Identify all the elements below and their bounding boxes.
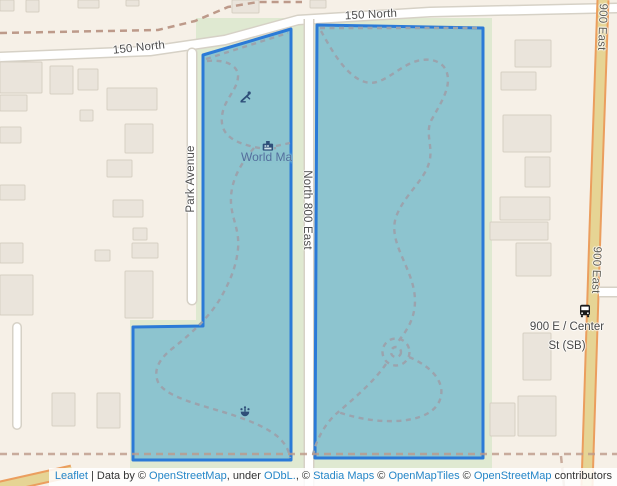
attribution-text: © xyxy=(460,470,474,482)
building xyxy=(0,275,33,315)
building xyxy=(0,0,14,11)
building xyxy=(80,110,93,121)
building xyxy=(50,66,73,94)
attribution-link-stadia-maps[interactable]: Stadia Maps xyxy=(313,470,374,482)
building xyxy=(107,88,157,110)
attribution-link-odbl[interactable]: ODbL. xyxy=(264,470,296,482)
building xyxy=(232,0,259,13)
park-parcel-east[interactable] xyxy=(315,25,483,458)
building xyxy=(113,200,143,217)
attribution-bar: Leaflet | Data by © OpenStreetMap, under… xyxy=(49,468,617,486)
attribution-link-openmaptiles[interactable]: OpenMapTiles xyxy=(388,470,459,482)
building xyxy=(490,403,515,436)
building xyxy=(518,396,556,436)
building xyxy=(0,95,27,111)
building xyxy=(97,393,120,428)
building xyxy=(0,185,25,200)
building xyxy=(501,72,536,90)
attribution-text: , © xyxy=(296,470,313,482)
map-tiles xyxy=(0,0,617,486)
building xyxy=(0,127,21,143)
building xyxy=(503,115,551,152)
attribution-text: , under xyxy=(227,470,264,482)
building xyxy=(107,160,132,177)
building xyxy=(516,243,551,276)
attribution-link-openstreetmap[interactable]: OpenStreetMap xyxy=(474,470,552,482)
building xyxy=(125,271,153,318)
attribution-text: © xyxy=(374,470,388,482)
building xyxy=(132,243,158,258)
building xyxy=(490,222,548,240)
building xyxy=(0,62,42,93)
building xyxy=(133,228,147,240)
building xyxy=(523,333,551,380)
building xyxy=(525,157,550,187)
building xyxy=(52,393,75,426)
building xyxy=(78,69,98,90)
building xyxy=(26,0,39,12)
building xyxy=(126,0,139,6)
attribution-link-leaflet[interactable]: Leaflet xyxy=(55,470,88,482)
building xyxy=(500,197,550,220)
building xyxy=(125,124,153,153)
attribution-text: | Data by © xyxy=(88,470,149,482)
attribution-text: contributors xyxy=(551,470,612,482)
building xyxy=(310,0,326,8)
building xyxy=(78,0,99,8)
building xyxy=(515,40,551,67)
attribution-link-openstreetmap[interactable]: OpenStreetMap xyxy=(149,470,227,482)
building xyxy=(0,243,23,263)
building xyxy=(95,250,110,261)
map-canvas[interactable]: 150 North150 NorthPark AvenueNorth 800 E… xyxy=(0,0,617,486)
